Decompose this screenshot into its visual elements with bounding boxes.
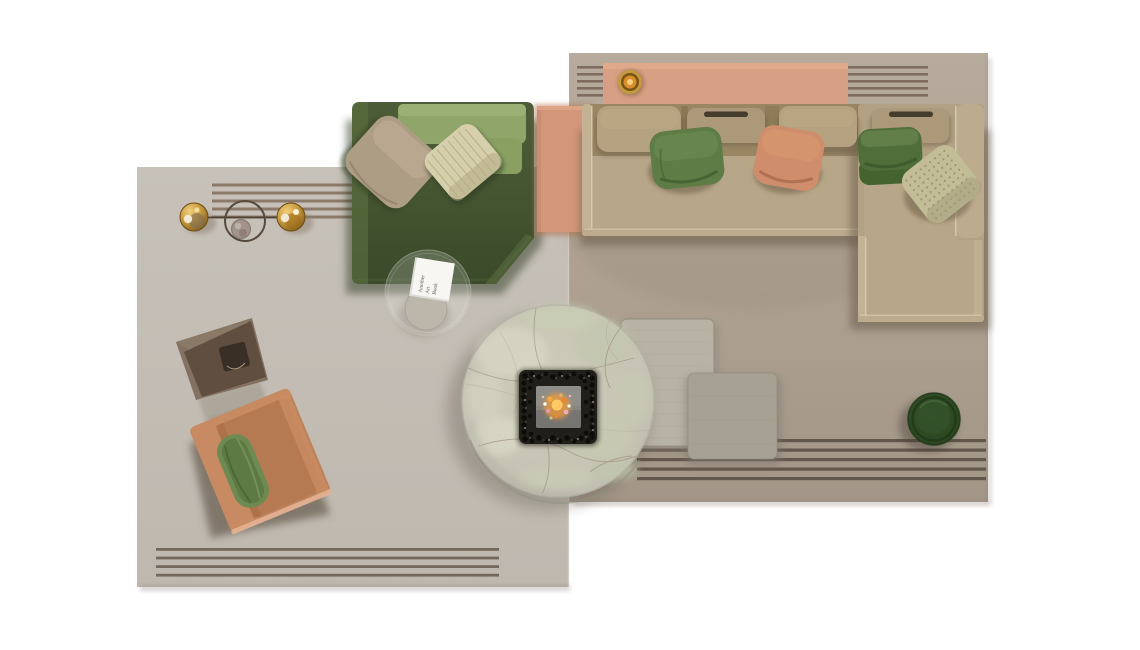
svg-text:Art: Art	[425, 286, 432, 295]
